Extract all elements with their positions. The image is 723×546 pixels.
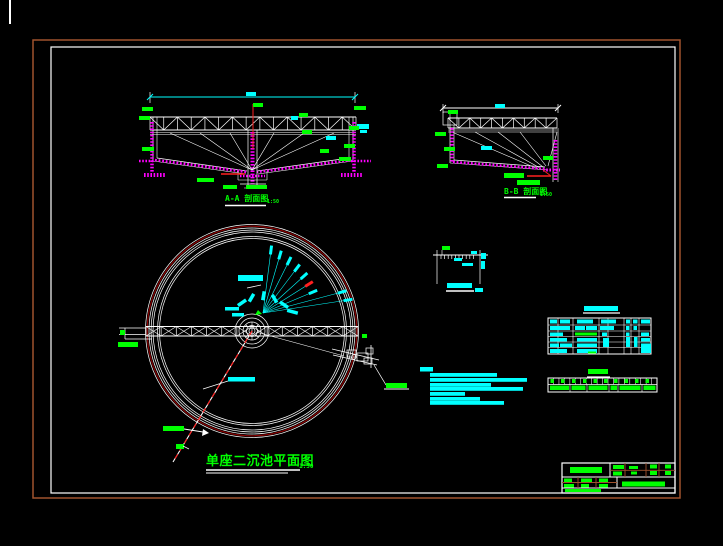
section-a-view [139, 92, 371, 206]
drawing-frame [9, 0, 680, 498]
notes-block [420, 367, 527, 405]
section-b-scale: 1:50 [540, 193, 552, 198]
section-a-scale: 1:50 [267, 200, 279, 205]
plan-view [118, 225, 409, 474]
plan-scale: 1:50 [299, 464, 313, 470]
legend-table [548, 369, 657, 392]
cad-drawing [0, 0, 723, 546]
plan-title: 单座二沉池平面图 [206, 455, 314, 468]
section-a-title: A-A 剖面图 [225, 195, 268, 203]
cad-canvas: A-A 剖面图 1:50 B-B 剖面图 1:50 单座二沉池平面图 1:50 [0, 0, 723, 546]
weir-detail-view [433, 246, 488, 292]
equipment-table [548, 306, 651, 354]
section-b-view [435, 104, 561, 198]
title-block [562, 463, 675, 493]
